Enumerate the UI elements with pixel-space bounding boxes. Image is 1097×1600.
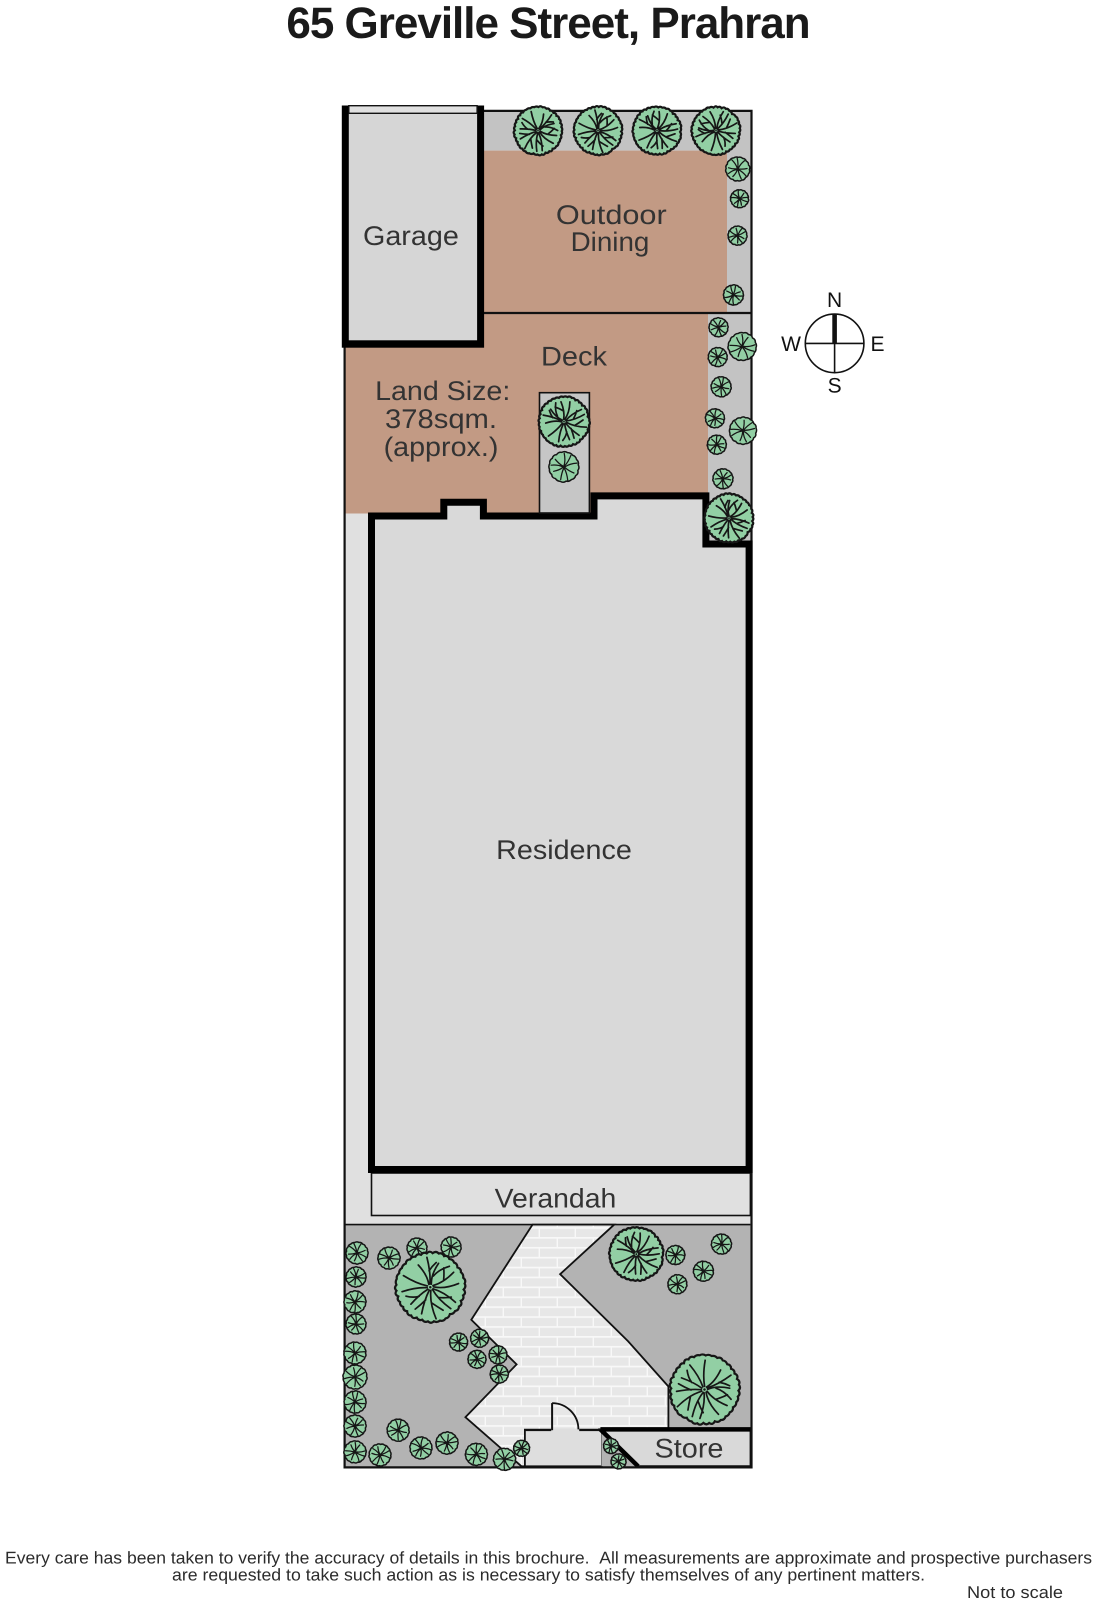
svg-text:65 Greville Street, Prahran: 65 Greville Street, Prahran <box>286 0 809 48</box>
svg-text:are requested to take such act: are requested to take such action as is … <box>172 1566 925 1585</box>
svg-text:Store: Store <box>655 1434 724 1464</box>
svg-text:Outdoor: Outdoor <box>556 200 667 230</box>
svg-text:W: W <box>781 333 801 356</box>
svg-text:Residence: Residence <box>496 835 632 865</box>
svg-text:(approx.): (approx.) <box>384 432 499 462</box>
svg-text:E: E <box>870 333 884 356</box>
svg-text:Not to scale: Not to scale <box>967 1583 1063 1600</box>
svg-text:Deck: Deck <box>541 342 608 372</box>
svg-text:Verandah: Verandah <box>495 1184 617 1214</box>
svg-text:Dining: Dining <box>571 227 650 257</box>
svg-text:Garage: Garage <box>363 221 459 251</box>
svg-text:N: N <box>827 289 842 312</box>
svg-text:Land Size:: Land Size: <box>375 376 510 406</box>
svg-text:378sqm.: 378sqm. <box>385 404 497 434</box>
svg-text:S: S <box>828 375 842 398</box>
